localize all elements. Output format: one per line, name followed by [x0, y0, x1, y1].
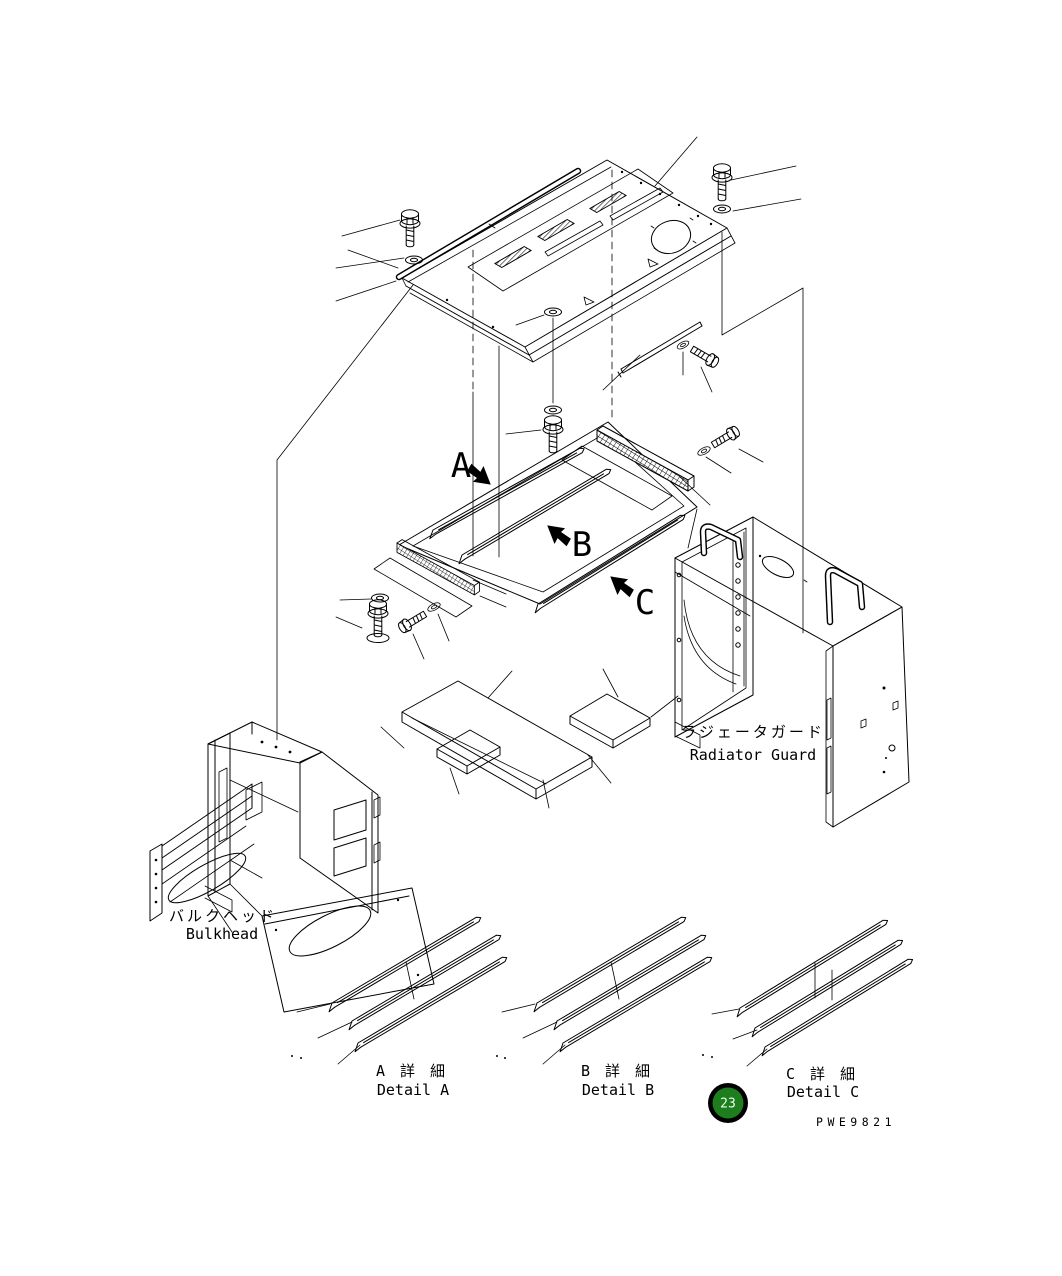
washer [545, 406, 562, 414]
projection-left [277, 285, 413, 740]
arrow-c-icon [604, 570, 638, 602]
bolt-flange [367, 634, 389, 643]
drawing-number: PWE9821 [816, 1115, 896, 1129]
wall-holes [677, 563, 740, 702]
title-block: PWE9821 [816, 1115, 896, 1129]
hex-bolt [397, 609, 429, 635]
leader-lines [506, 430, 541, 434]
bulkhead-label-en: Bulkhead [186, 925, 258, 943]
detail-strip [759, 957, 914, 1055]
grille-vent [334, 800, 366, 840]
washer [696, 445, 711, 457]
leader-lines [731, 166, 801, 211]
washer [714, 205, 731, 213]
parts-diagram-page: A B C [0, 0, 1062, 1276]
radiator-guard-label-jp: ラジェータガード [681, 723, 825, 741]
top-cover-assembly [336, 137, 735, 362]
washer [406, 256, 423, 264]
beam-holes [261, 741, 292, 754]
bulkhead-foot [150, 844, 162, 921]
balloon-number: 23 [720, 1097, 736, 1112]
leader-lines [502, 1004, 565, 1064]
guard-right-panel [833, 607, 909, 827]
detail-c-caption-jp: C 詳 細 [786, 1065, 858, 1083]
detail-view-a: A 詳 細 Detail A [291, 915, 509, 1099]
tie-rod [618, 322, 702, 377]
panel-holes [861, 687, 898, 774]
hex-bolt [712, 164, 732, 201]
bulkhead-label-jp: バルクヘッド [169, 907, 277, 925]
radiator-guard-label-en: Radiator Guard [690, 746, 816, 764]
exploded-parts-diagram: A B C [0, 0, 1062, 1276]
detail-view-c: C 詳 細 Detail C [702, 918, 914, 1101]
bulkhead-top-beam [208, 722, 322, 763]
guard-handle [828, 570, 862, 622]
guard-handle [703, 527, 740, 557]
detail-b-caption-jp: B 詳 細 [581, 1062, 653, 1080]
radiator-guard: ラジェータガード Radiator Guard [675, 517, 909, 827]
fan-hole [647, 215, 696, 259]
washer [372, 594, 389, 602]
hatch-vents [495, 192, 626, 268]
grille-panel [300, 752, 378, 913]
section-marker-a: A [451, 446, 471, 486]
plate-large [402, 681, 592, 799]
plate-tongue [437, 730, 500, 774]
leader-lines [297, 1004, 360, 1064]
washer [426, 601, 441, 613]
foot-holes [155, 859, 158, 904]
leader-lines [336, 137, 697, 301]
hex-bolt [368, 600, 388, 637]
projection-lines [277, 170, 803, 740]
column-window [219, 768, 227, 842]
leader-lines [381, 669, 678, 808]
leader-lines [706, 449, 763, 473]
roof-panel [402, 160, 735, 362]
section-marker-b: B [572, 525, 592, 565]
top-fasteners [336, 164, 801, 473]
roof-handle [399, 171, 578, 277]
rivet-dots [446, 171, 712, 328]
leader-lines [603, 352, 712, 392]
leader-lines [712, 1009, 767, 1066]
plate-right [570, 694, 650, 748]
washer [545, 308, 562, 316]
detail-view-b: B 詳 細 Detail B [496, 915, 714, 1099]
bulkhead: バルクヘッド Bulkhead [150, 722, 434, 1012]
inner-bracket [230, 780, 298, 878]
hex-bolt [400, 210, 420, 247]
hex-bolt [689, 343, 721, 369]
detail-strip [734, 918, 889, 1016]
seal-frame-assembly: A B C [336, 422, 710, 659]
grille-vent [334, 838, 366, 876]
detail-a-caption-en: Detail A [377, 1081, 449, 1099]
floor-plates [381, 669, 678, 808]
hex-bolt [710, 424, 742, 450]
washer [676, 339, 690, 350]
part-callout-balloon[interactable]: 23 [708, 1083, 748, 1123]
guard-oval-hole [759, 552, 797, 582]
lower-panel-slot [283, 896, 378, 965]
detail-strip [557, 955, 714, 1051]
hex-bolt [543, 416, 563, 453]
detail-a-caption-jp: A 詳 細 [376, 1062, 448, 1080]
detail-c-caption-en: Detail C [787, 1083, 859, 1101]
leader-lines [336, 220, 404, 268]
leader-lines [336, 599, 449, 659]
detail-b-caption-en: Detail B [582, 1081, 654, 1099]
section-marker-c: C [635, 583, 655, 623]
detail-strip [749, 938, 904, 1036]
bulkhead-arm [162, 784, 252, 870]
arrow-b-icon [541, 519, 575, 551]
leader-lines [516, 315, 553, 403]
